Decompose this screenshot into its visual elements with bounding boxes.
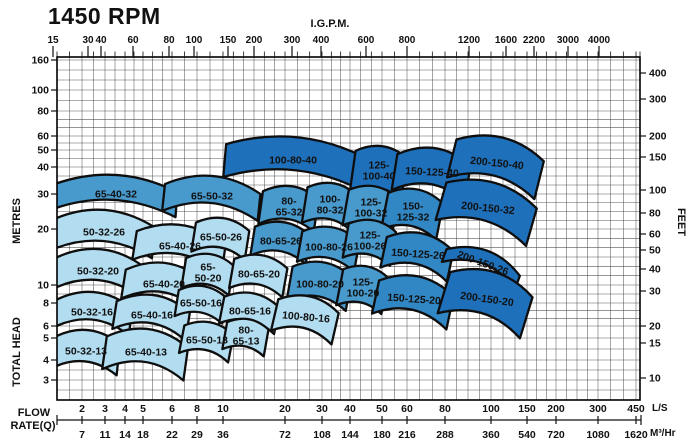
svg-text:1080: 1080 (586, 429, 610, 441)
svg-text:200: 200 (246, 35, 263, 46)
svg-text:20: 20 (37, 224, 49, 236)
svg-text:1620: 1620 (624, 429, 648, 441)
svg-text:50: 50 (37, 145, 49, 157)
svg-text:3: 3 (43, 375, 49, 387)
svg-text:60: 60 (649, 229, 661, 241)
svg-text:2200: 2200 (523, 35, 546, 46)
region-label-65-40-13: 65-40-13 (125, 347, 167, 359)
svg-text:6: 6 (43, 321, 49, 333)
pump-selection-chart: 100-80-40125-100-40150-125-40200-150-406… (0, 0, 700, 444)
region-label-100-80-32: 100-80-32 (317, 194, 344, 217)
svg-text:80: 80 (163, 35, 175, 46)
svg-text:144: 144 (341, 429, 359, 441)
svg-text:40: 40 (37, 162, 49, 174)
svg-text:60: 60 (401, 403, 413, 415)
svg-text:150: 150 (518, 403, 536, 415)
svg-text:200: 200 (547, 403, 565, 415)
svg-text:10: 10 (649, 373, 661, 385)
svg-text:360: 360 (482, 429, 500, 441)
svg-text:108: 108 (313, 429, 331, 441)
svg-text:600: 600 (358, 35, 375, 46)
chart-canvas: 100-80-40125-100-40150-125-40200-150-406… (0, 0, 700, 444)
svg-text:60: 60 (127, 35, 139, 46)
svg-text:300: 300 (284, 35, 301, 46)
region-label-50-32-20: 50-32-20 (77, 266, 119, 278)
svg-text:8: 8 (43, 298, 49, 310)
svg-text:400: 400 (313, 35, 330, 46)
svg-text:100: 100 (649, 185, 667, 197)
svg-text:720: 720 (547, 429, 565, 441)
left-axis: 1601008060504030201086543 (31, 55, 57, 387)
region-label-100-80-26: 100-80-26 (305, 242, 353, 254)
svg-text:40: 40 (649, 264, 661, 276)
svg-text:29: 29 (191, 429, 203, 441)
right-axis: 4003002001501008060504030201510 (640, 68, 667, 385)
svg-text:216: 216 (398, 429, 416, 441)
region-label-100-80-20: 100-80-20 (296, 279, 344, 291)
svg-text:60: 60 (37, 131, 49, 143)
svg-text:288: 288 (436, 429, 454, 441)
svg-text:3: 3 (102, 403, 108, 415)
svg-text:30: 30 (316, 403, 328, 415)
svg-text:36: 36 (217, 429, 229, 441)
svg-text:1200: 1200 (458, 35, 481, 46)
svg-text:400: 400 (649, 68, 667, 80)
svg-text:150: 150 (649, 152, 667, 164)
region-label-80-65-16: 80-65-16 (229, 306, 271, 318)
svg-text:7: 7 (79, 429, 85, 441)
region-label-65-50-13: 65-50-13 (186, 335, 228, 347)
svg-text:15: 15 (47, 35, 59, 46)
svg-text:40: 40 (344, 403, 356, 415)
svg-text:160: 160 (31, 55, 49, 67)
svg-text:80: 80 (649, 208, 661, 220)
svg-text:10: 10 (37, 280, 49, 292)
svg-text:22: 22 (166, 429, 178, 441)
svg-text:72: 72 (279, 429, 291, 441)
region-label-65-50-16: 65-50-16 (180, 298, 222, 310)
svg-text:14: 14 (119, 429, 131, 441)
svg-text:100: 100 (482, 403, 500, 415)
svg-text:450: 450 (627, 403, 645, 415)
region-label-50-32-26: 50-32-26 (83, 227, 125, 239)
svg-text:100: 100 (31, 85, 49, 97)
region-label-65-40-26: 65-40-26 (159, 241, 201, 253)
region-label-65-50-26: 65-50-26 (200, 232, 242, 244)
svg-text:20: 20 (279, 403, 291, 415)
svg-text:4: 4 (43, 355, 49, 367)
region-label-100-80-40: 100-80-40 (269, 155, 317, 167)
svg-text:800: 800 (399, 35, 416, 46)
region-label-80-65-20: 80-65-20 (238, 269, 280, 281)
bottom-axis: 2731141451862282910362072301084014450180… (57, 403, 648, 441)
svg-text:40: 40 (95, 35, 107, 46)
svg-text:20: 20 (649, 321, 661, 333)
region-label-65-40-20: 65-40-20 (143, 279, 185, 291)
svg-text:6: 6 (169, 403, 175, 415)
region-label-80-65-26: 80-65-26 (260, 236, 302, 248)
region-label-65-40-16: 65-40-16 (131, 310, 173, 322)
region-label-65-50-32: 65-50-32 (191, 191, 233, 203)
pump-performance-chart-page: 1450 RPM I.G.P.M. METRES TOTAL HEAD FEET… (0, 0, 700, 444)
svg-text:5: 5 (140, 403, 146, 415)
svg-text:30: 30 (649, 286, 661, 298)
svg-text:8: 8 (194, 403, 200, 415)
svg-text:300: 300 (649, 94, 667, 106)
svg-text:11: 11 (99, 429, 110, 441)
svg-text:80: 80 (439, 403, 451, 415)
svg-text:50: 50 (649, 245, 661, 257)
svg-text:18: 18 (137, 429, 149, 441)
svg-text:50: 50 (376, 403, 388, 415)
svg-text:30: 30 (37, 189, 49, 201)
svg-text:200: 200 (649, 131, 667, 143)
svg-text:540: 540 (518, 429, 536, 441)
svg-text:3000: 3000 (557, 35, 580, 46)
svg-text:15: 15 (649, 338, 661, 350)
top-axis: 1530406080100150200300400600800120016002… (47, 35, 640, 57)
svg-text:80: 80 (37, 106, 49, 118)
svg-text:4000: 4000 (588, 35, 611, 46)
svg-text:1600: 1600 (495, 35, 518, 46)
svg-text:150: 150 (220, 35, 237, 46)
svg-text:10: 10 (217, 403, 229, 415)
svg-text:100: 100 (186, 35, 203, 46)
svg-text:300: 300 (589, 403, 607, 415)
region-label-50-32-16: 50-32-16 (71, 307, 113, 319)
region-label-50-32-13: 50-32-13 (65, 346, 107, 358)
svg-text:2: 2 (79, 403, 85, 415)
region-label-65-40-32: 65-40-32 (95, 189, 137, 201)
svg-text:180: 180 (373, 429, 391, 441)
svg-text:5: 5 (43, 333, 49, 345)
svg-text:4: 4 (122, 403, 128, 415)
svg-text:30: 30 (82, 35, 94, 46)
